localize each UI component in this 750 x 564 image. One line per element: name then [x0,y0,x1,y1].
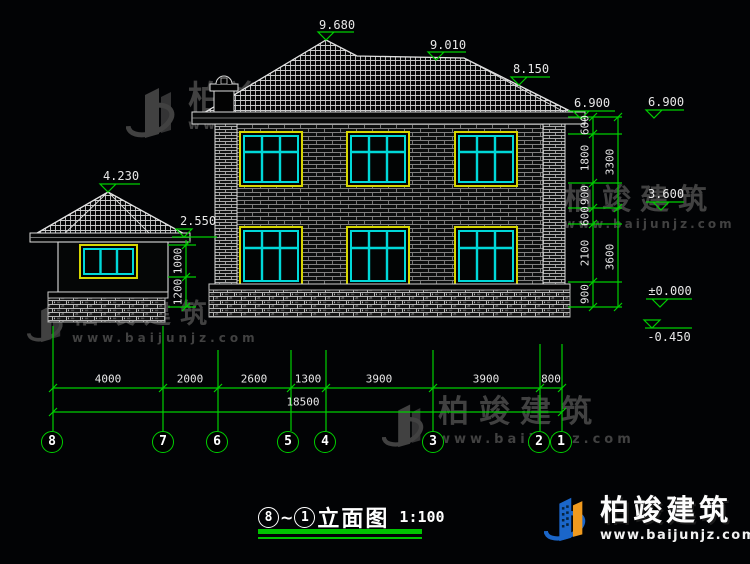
dim-right-900a: 900 [579,185,592,205]
cad-elevation-drawing: 柏竣建筑 www.baijunjz.com 柏竣建筑 www.baijunjz.… [0,0,750,564]
porch-stone-base [48,298,165,322]
main-building [192,40,585,317]
grid-bubble-3: 3 [422,431,444,453]
dim-3900-a: 3900 [366,373,393,386]
lower-window-1 [240,227,302,285]
dim-left-1200: 1200 [172,279,185,306]
main-stone-base [209,290,570,317]
grid-bubble-1: 1 [550,431,572,453]
dim-1300: 1300 [295,373,322,386]
elevation-linework [0,0,750,564]
upper-window-3 [455,132,517,186]
grid-bubble-4: 4 [314,431,336,453]
title-underline-thick [258,529,422,534]
grid-bubble-7: 7 [152,431,174,453]
title-scale: 1:100 [399,508,444,526]
left-corner-pier [215,124,237,284]
main-sill-band [209,284,570,290]
dim-4000: 4000 [95,373,122,386]
dim-right-2100: 2100 [579,240,592,267]
title-underline-thin [258,537,422,539]
chimney [210,76,238,116]
dim-2600: 2600 [241,373,268,386]
elevation-label-roof-break: 8.150 [513,62,549,76]
dim-right-600b: 600 [579,206,592,226]
dim-left-1000: 1000 [172,248,185,275]
dim-right-600a: 600 [579,115,592,135]
title-bubble-from: 8 [258,507,279,528]
dim-2000: 2000 [177,373,204,386]
upper-window-1 [240,132,302,186]
dim-right-total-3300: 3300 [604,149,617,176]
dim-3900-b: 3900 [473,373,500,386]
lower-window-3 [455,227,517,285]
dim-right-total-3600: 3600 [604,244,617,271]
dim-right-1800: 1800 [579,145,592,172]
grid-bubble-5: 5 [277,431,299,453]
elevation-label-ridge-right: 9.010 [430,38,466,52]
grid-bubble-6: 6 [206,431,228,453]
brand-name: 柏竣建筑 [600,495,750,527]
grid-bubble-2: 2 [528,431,550,453]
main-roof [197,40,580,117]
grid-bubble-8: 8 [41,431,63,453]
dim-800: 800 [541,373,561,386]
elevation-label-porch-eave: 2.550 [180,214,216,228]
dim-right-900b: 900 [579,284,592,304]
lower-window-2 [347,227,409,285]
elevation-label-floor2: 3.600 [648,187,684,201]
title-tilde: ~ [280,508,293,527]
elevation-label-main-ridge: 9.680 [319,18,355,32]
porch-building [30,192,190,322]
porch-roof [32,192,188,236]
brand-logo-icon [544,486,590,552]
elevation-label-ground: ±0.000 [648,284,691,298]
elevation-label-porch-ridge: 4.230 [103,169,139,183]
upper-window-2 [347,132,409,186]
elevation-label-eave: 6.900 [574,96,610,110]
brand-url: www.baijunjz.com [600,528,750,543]
title-bubble-to: 1 [294,507,315,528]
right-corner-pier [543,124,565,284]
porch-sill-band [48,292,168,298]
elevation-label-footing: -0.450 [647,330,690,344]
porch-window [80,245,137,278]
elevation-label-eave-right: 6.900 [648,95,684,109]
brand-logo: 柏竣建筑 www.baijunjz.com [544,486,750,552]
dim-total-18500: 18500 [286,396,319,409]
